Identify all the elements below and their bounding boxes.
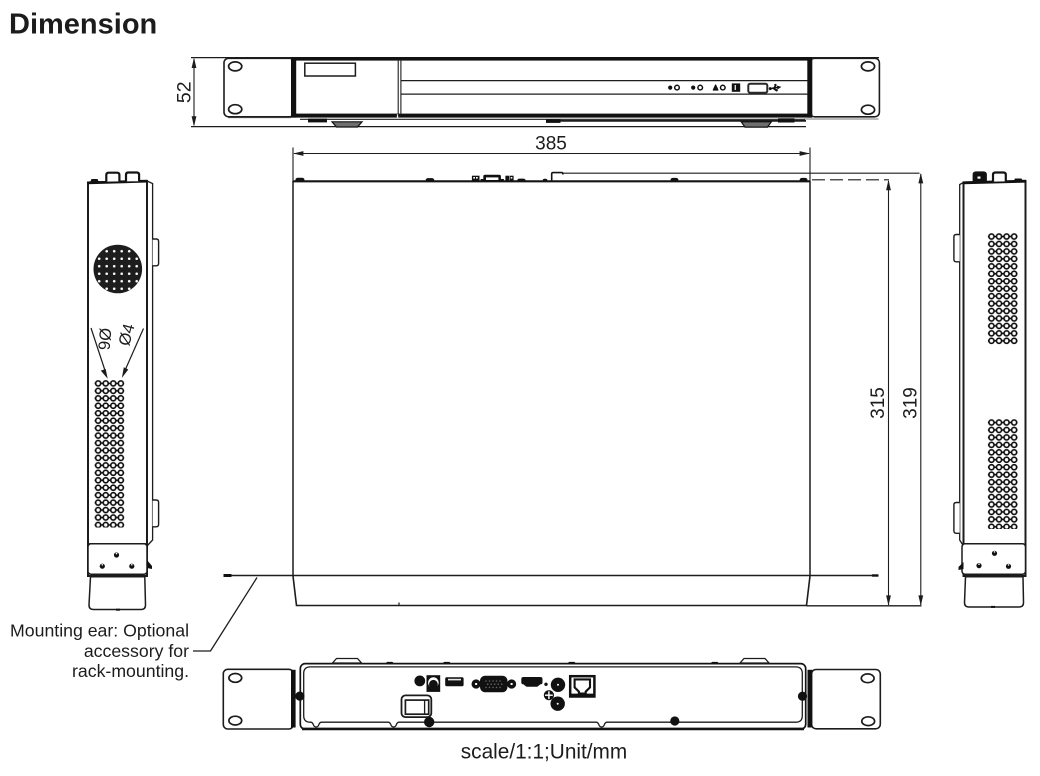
svg-text:Mounting ear: Optional: Mounting ear: Optional: [10, 621, 189, 641]
svg-text:accessory for: accessory for: [84, 641, 189, 661]
svg-text:scale/1:1;Unit/mm: scale/1:1;Unit/mm: [461, 741, 627, 764]
svg-text:315: 315: [868, 387, 889, 419]
svg-text:385: 385: [535, 134, 567, 155]
svg-text:rack-mounting.: rack-mounting.: [72, 661, 189, 681]
svg-text:Dimension: Dimension: [9, 9, 157, 41]
svg-text:52: 52: [174, 81, 196, 103]
svg-text:319: 319: [901, 387, 922, 419]
